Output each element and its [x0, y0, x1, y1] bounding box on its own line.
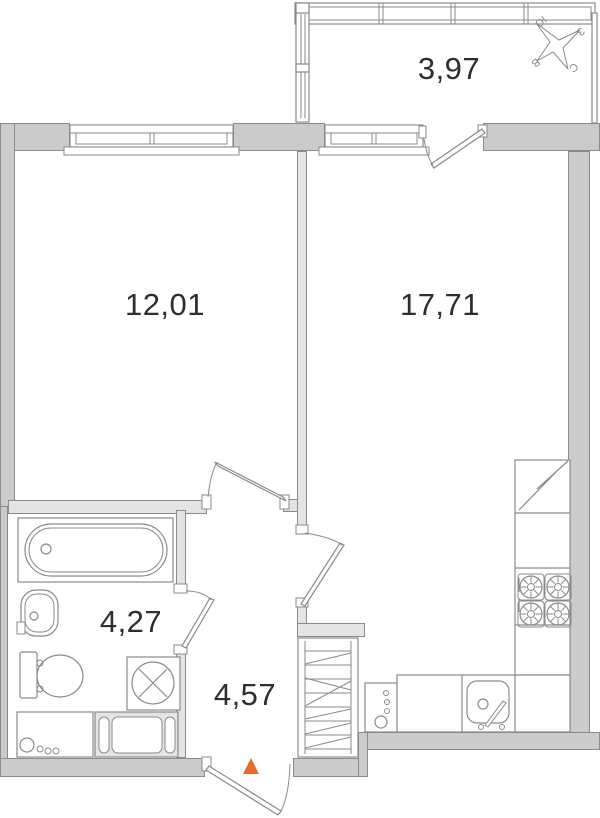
appliance-panel: [365, 683, 397, 732]
bathroom-cabinet: [17, 712, 93, 757]
wardrobe: [298, 638, 358, 757]
bathtub: [18, 518, 173, 582]
compass-north-label: С: [566, 60, 580, 74]
kitchen-living-area-label: 17,71: [390, 287, 490, 323]
plan-linework: Ю З В С: [0, 0, 600, 818]
entrance-arrow: [243, 758, 259, 774]
balcony-area-label: 3,97: [399, 51, 499, 87]
wash-basin: [17, 590, 58, 636]
washing-machine: [127, 657, 180, 710]
compass-west-label: З: [574, 24, 587, 38]
bathroom-area-label: 4,27: [81, 604, 181, 640]
door-kitchen-living: [296, 525, 344, 607]
floor-plan: Ю З В С: [0, 0, 600, 818]
room-area-label: 12,01: [115, 287, 215, 323]
door-room: [202, 462, 289, 509]
window-room: [64, 125, 239, 155]
bath-mat: [95, 712, 178, 757]
window-kitchen-living: [319, 125, 429, 155]
entrance-door: [202, 757, 290, 815]
hallway-area-label: 4,57: [195, 677, 295, 713]
toilet: [20, 652, 83, 698]
